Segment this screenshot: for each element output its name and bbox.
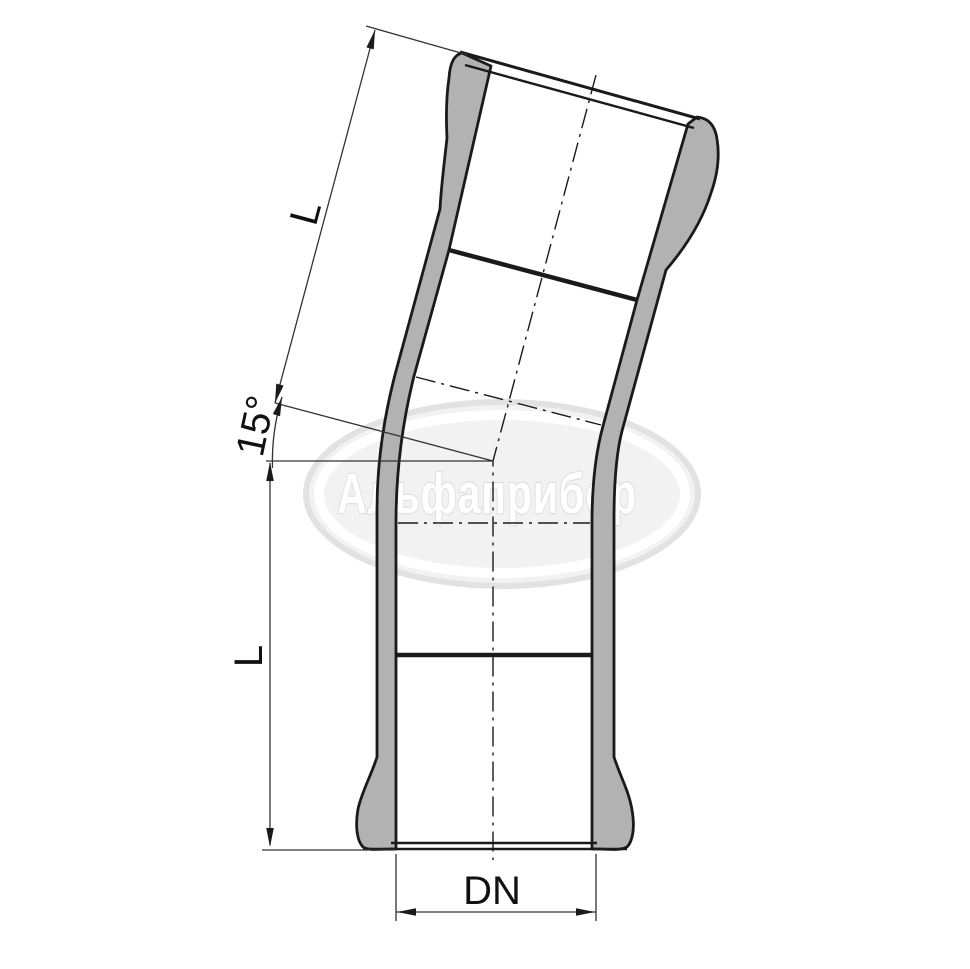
upper-rim-outer-line: [460, 52, 700, 119]
label-dn: DN: [463, 869, 521, 913]
upper-rim-inner-line: [465, 65, 694, 128]
upper-extension-line: [366, 26, 468, 55]
arrow-vertical-L-bottom: [266, 828, 274, 847]
arrow-dn-left: [397, 908, 416, 916]
arrow-upper-L-top: [366, 29, 378, 49]
label-angle-15deg: 15°: [228, 392, 284, 460]
label-lower-L: L: [227, 645, 271, 667]
arrow-dn-right: [576, 908, 595, 916]
upper-socket-depth-line: [449, 250, 637, 300]
pipe-bend-15deg-drawing: Альфаприбор: [0, 0, 970, 969]
technical-drawing-page: Альфаприбор: [0, 0, 970, 969]
label-upper-L: L: [282, 197, 330, 230]
